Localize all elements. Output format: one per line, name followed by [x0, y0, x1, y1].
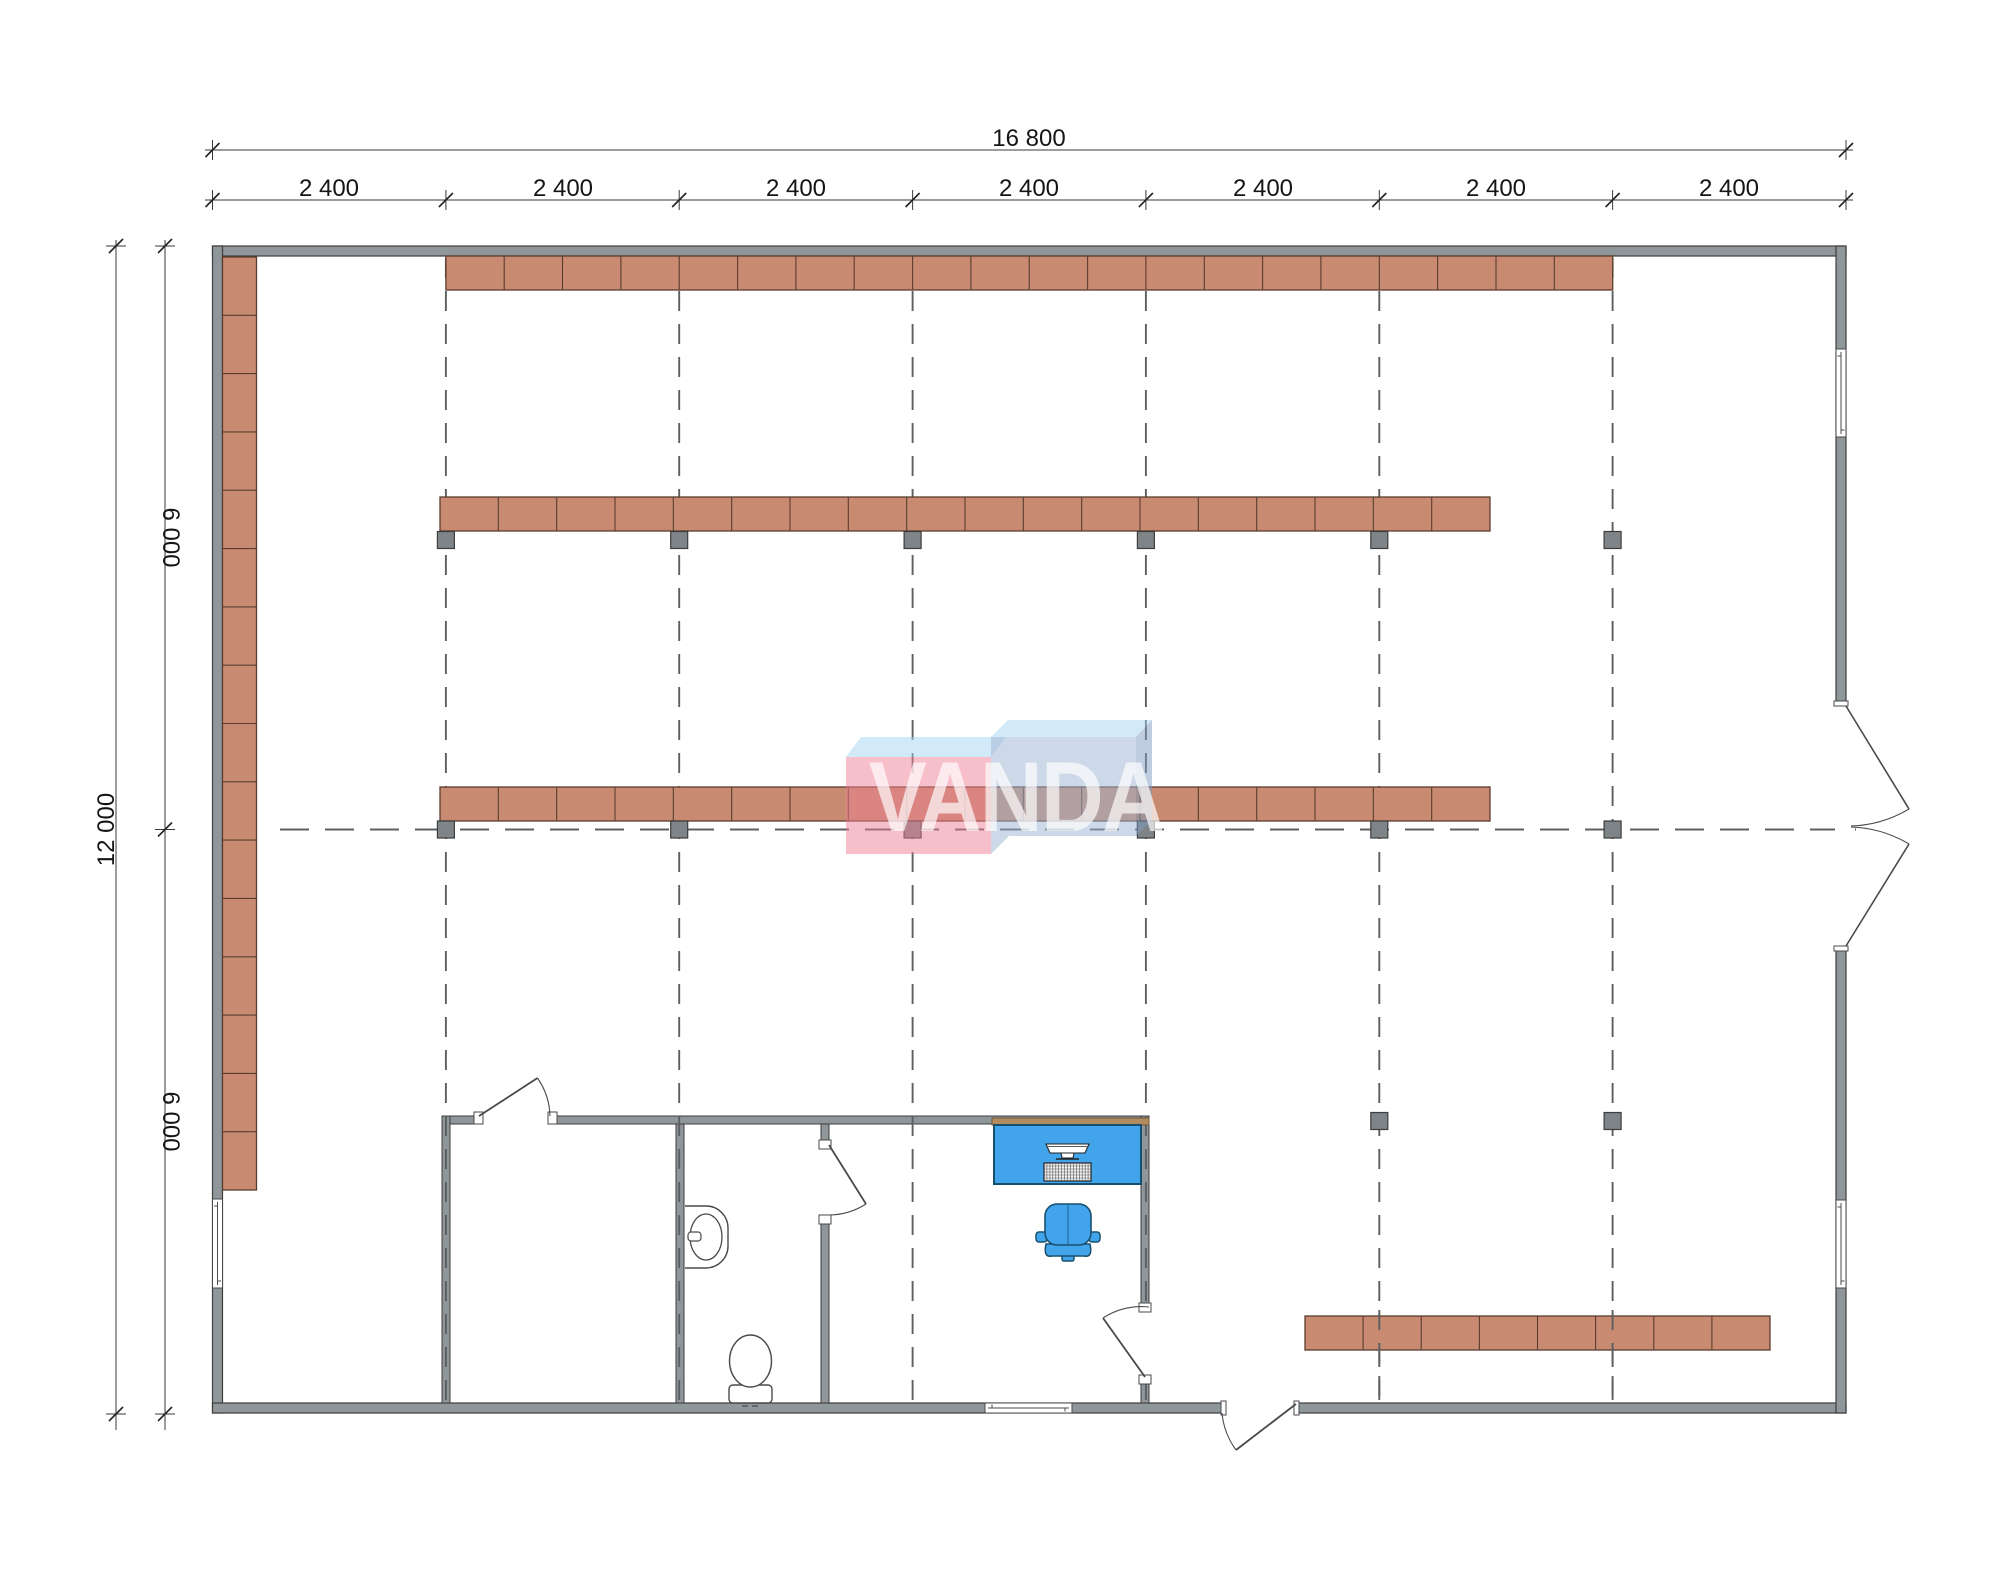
svg-text:2 400: 2 400: [299, 175, 359, 202]
svg-text:2 400: 2 400: [533, 175, 593, 202]
svg-text:6 000: 6 000: [157, 507, 184, 567]
svg-text:VANDA: VANDA: [869, 742, 1163, 852]
svg-text:12 000: 12 000: [93, 793, 120, 866]
svg-text:2 400: 2 400: [1233, 175, 1293, 202]
svg-text:2 400: 2 400: [999, 175, 1059, 202]
svg-text:6 000: 6 000: [157, 1091, 184, 1151]
svg-text:2 400: 2 400: [766, 175, 826, 202]
svg-text:2 400: 2 400: [1466, 175, 1526, 202]
svg-text:2 400: 2 400: [1699, 175, 1759, 202]
svg-text:16 800: 16 800: [992, 125, 1065, 152]
